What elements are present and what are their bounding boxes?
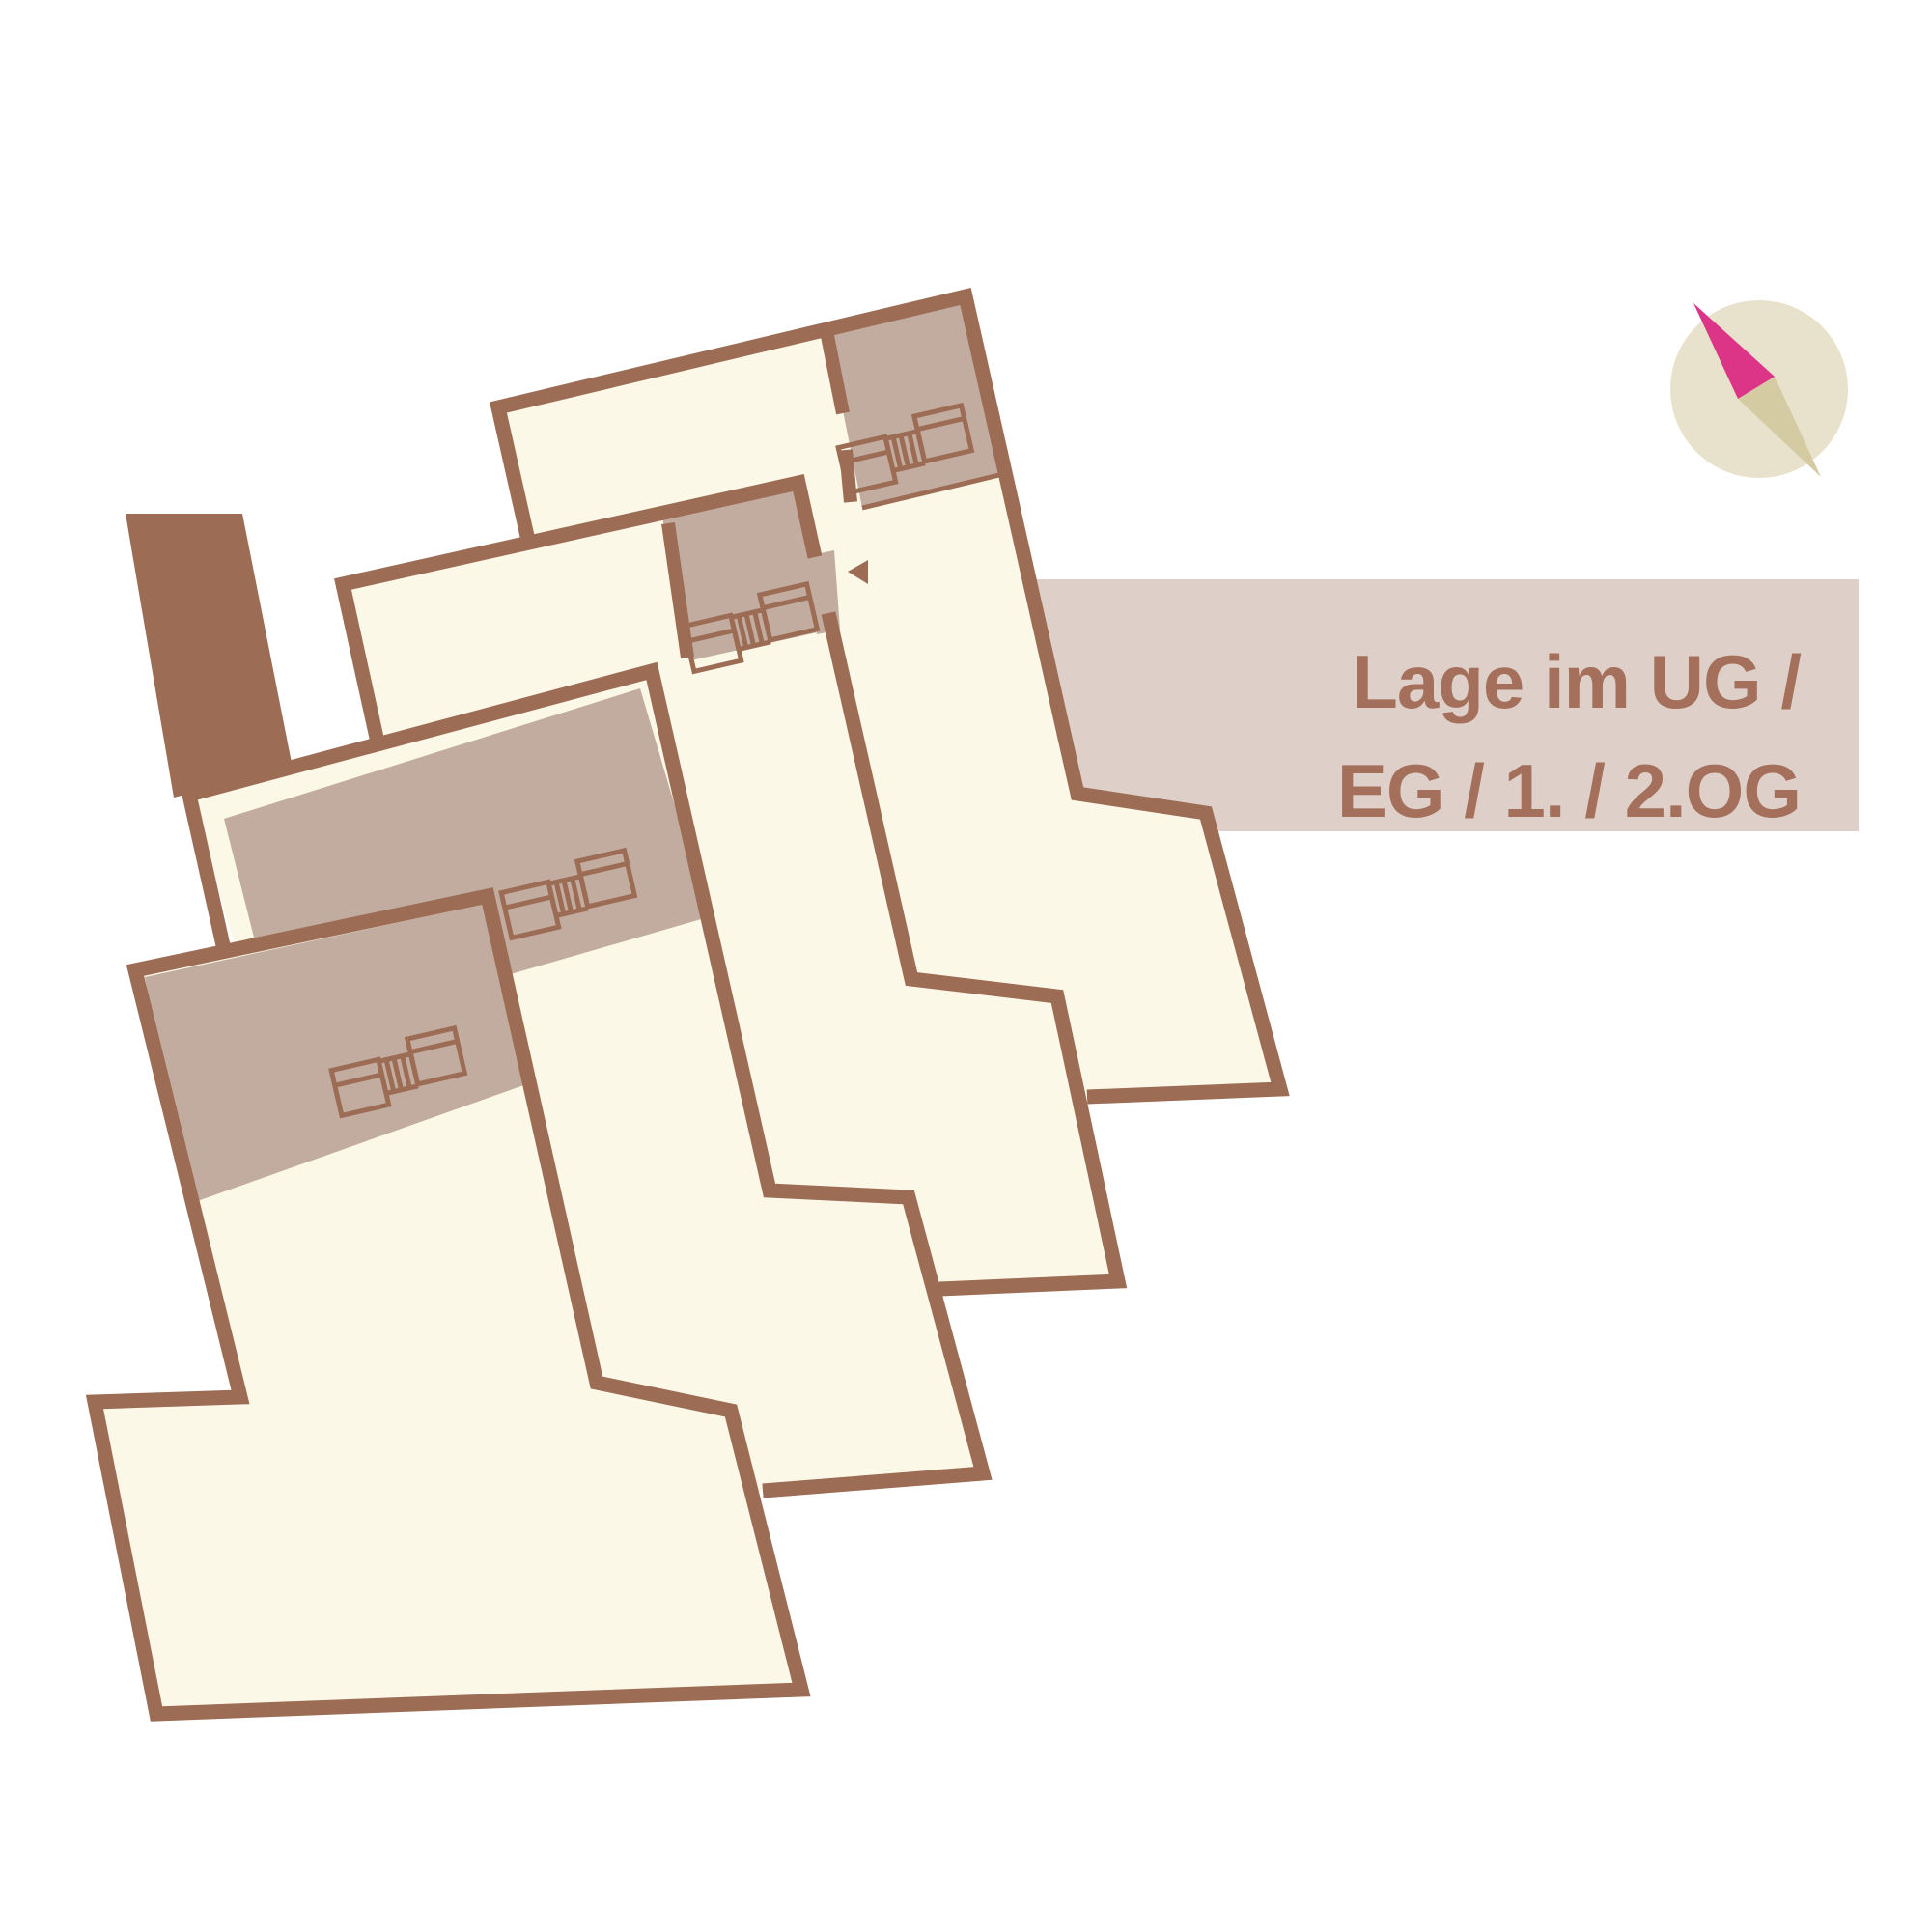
site-plan-page: Lage im UG / EG / 1. / 2.OG [0,0,1931,1932]
floor-plans-layer [95,296,1280,1714]
floor-location-label-line1: Lage im UG / [1352,639,1801,724]
compass-icon [1670,300,1848,478]
floor-plan-mid-lower-wall-stub-0 [126,514,293,798]
floor-plan-back-interior-wall-1 [846,450,851,502]
floor-location-label-line2: EG / 1. / 2.OG [1337,748,1801,833]
site-plan-canvas: Lage im UG / EG / 1. / 2.OG [0,0,1931,1932]
